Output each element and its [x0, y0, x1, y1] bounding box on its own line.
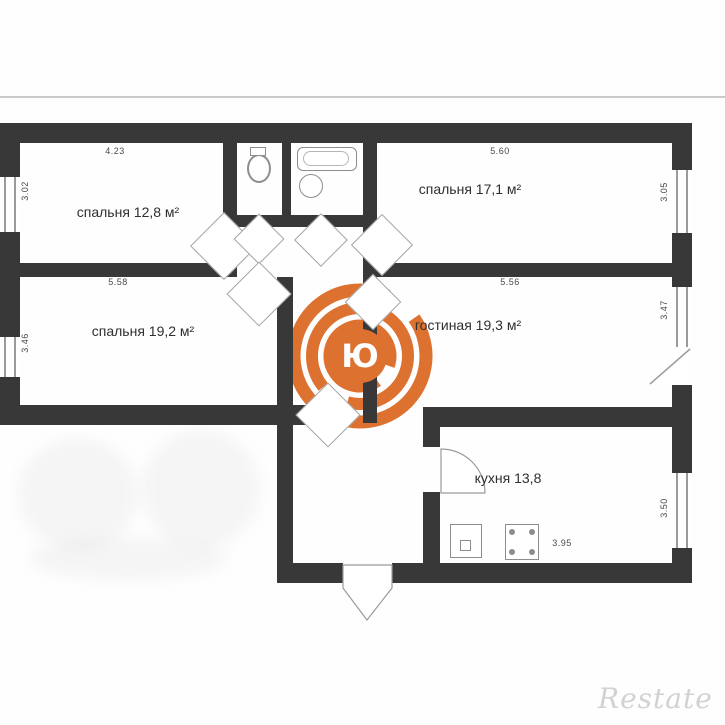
dim-bedroom-2-width: 5.60 — [470, 146, 530, 156]
wall — [282, 143, 291, 215]
dim-bedroom-1-depth: 3.02 — [20, 173, 32, 209]
page-divider-line — [0, 96, 725, 98]
wall — [672, 548, 692, 583]
faint-watermark-blob — [28, 538, 228, 580]
floorplan-image: Ю спальня 12,8 м² спальня 17,1 м² спальн… — [0, 0, 725, 725]
faint-watermark-blob — [142, 430, 260, 548]
restate-watermark: Restate — [598, 682, 725, 715]
wall — [0, 123, 692, 143]
toilet-icon — [247, 154, 271, 183]
stove-icon — [505, 524, 539, 560]
window — [672, 170, 692, 233]
washbasin-icon — [299, 174, 323, 198]
dim-living-width: 5.56 — [480, 277, 540, 287]
wall — [277, 563, 343, 583]
wall — [423, 427, 440, 447]
wall — [0, 232, 20, 337]
wall — [363, 263, 692, 277]
dim-kitchen-width: 3.95 — [540, 538, 584, 548]
window — [0, 177, 20, 232]
kitchen-sink-drain-icon — [460, 540, 471, 551]
dim-kitchen-depth: 3.50 — [659, 490, 671, 526]
wall — [277, 277, 293, 583]
logo-letter: Ю — [341, 337, 379, 375]
wall — [392, 563, 692, 583]
window — [672, 287, 692, 347]
dim-living-depth: 3.47 — [659, 292, 671, 328]
room-label-bedroom-2: спальня 17,1 м² — [380, 181, 560, 197]
dim-bedroom-2-depth: 3.05 — [659, 174, 671, 210]
wall — [672, 233, 692, 287]
wall — [0, 143, 20, 177]
agency-logo-core: Ю — [330, 326, 390, 386]
room-label-living-room: гостиная 19,3 м² — [378, 317, 558, 333]
wall — [672, 123, 692, 170]
room-label-kitchen: кухня 13,8 — [448, 470, 568, 486]
window — [0, 337, 20, 377]
faint-watermark-blob — [18, 438, 138, 550]
balcony-door-leaf — [650, 349, 690, 384]
dim-bedroom-1-width: 4.23 — [85, 146, 145, 156]
dim-bedroom-3-width: 5.58 — [88, 277, 148, 287]
dim-bedroom-3-depth: 3.46 — [20, 325, 32, 361]
wall — [0, 263, 237, 277]
entrance-door — [343, 565, 392, 620]
toilet-tank-icon — [250, 147, 266, 156]
room-label-bedroom-1: спальня 12,8 м² — [38, 204, 218, 220]
room-label-bedroom-3: спальня 19,2 м² — [53, 323, 233, 339]
wall — [423, 407, 692, 427]
balcony-door-fill — [650, 349, 690, 384]
wall — [672, 385, 692, 473]
window — [672, 473, 692, 548]
bathtub-inner-icon — [303, 151, 349, 166]
